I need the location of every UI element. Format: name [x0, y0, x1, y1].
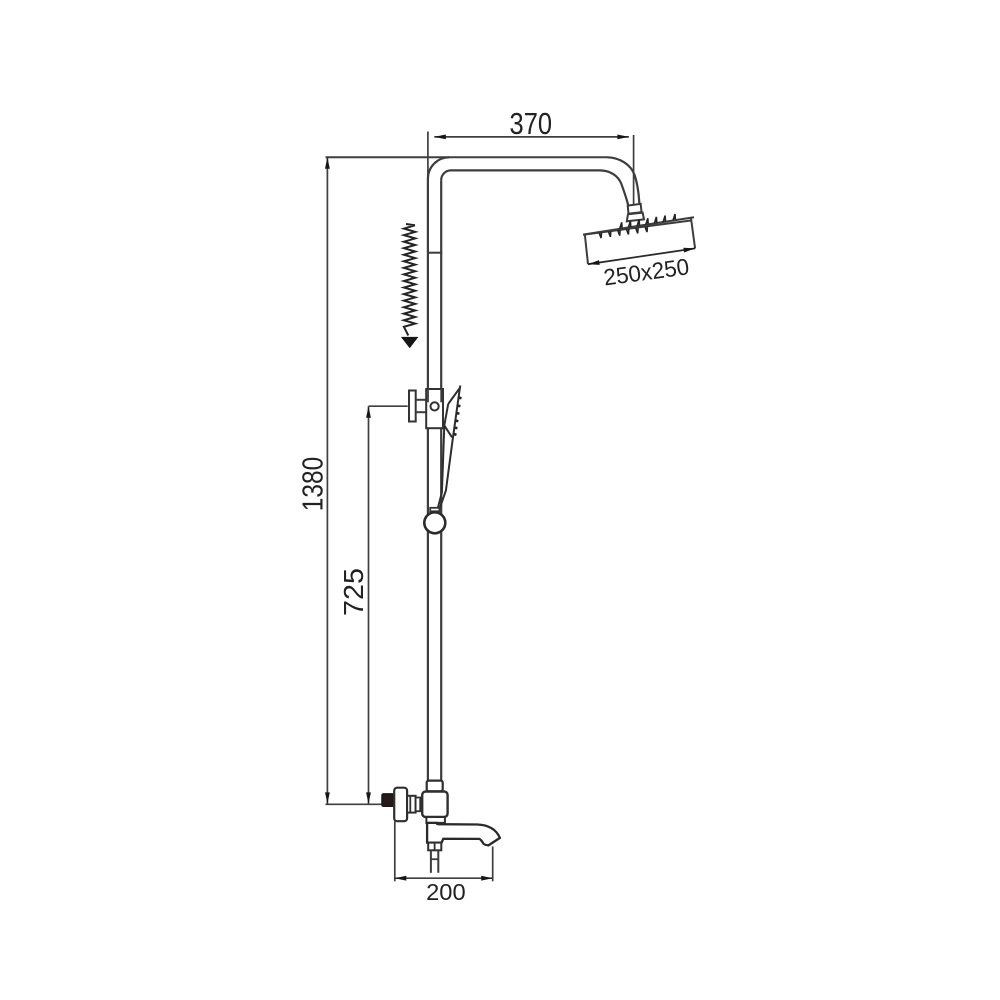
svg-text:370: 370 — [510, 106, 553, 141]
svg-text:1380: 1380 — [297, 457, 329, 512]
svg-text:200: 200 — [426, 879, 466, 905]
svg-text:725: 725 — [338, 568, 369, 616]
